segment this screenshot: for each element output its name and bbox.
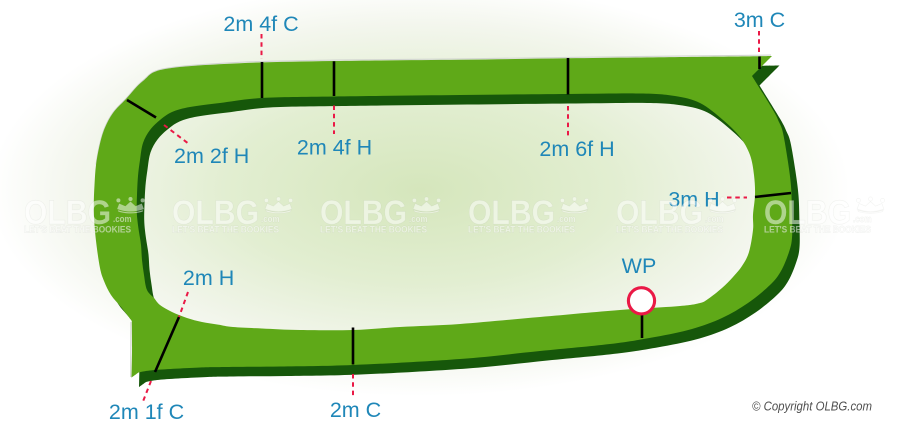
svg-text:LET'S BEAT THE BOOKIES: LET'S BEAT THE BOOKIES (468, 224, 575, 235)
svg-text:2m 2f H: 2m 2f H (174, 144, 249, 168)
svg-text:2m 1f C: 2m 1f C (109, 400, 184, 424)
svg-text:.com: .com (705, 214, 724, 224)
svg-text:.com: .com (113, 214, 132, 224)
svg-text:2m 6f H: 2m 6f H (539, 137, 614, 161)
svg-text:.com: .com (853, 214, 872, 224)
svg-text:LET'S BEAT THE BOOKIES: LET'S BEAT THE BOOKIES (24, 224, 131, 235)
svg-text:2m 4f C: 2m 4f C (223, 12, 298, 36)
svg-text:2m 4f H: 2m 4f H (297, 136, 372, 160)
svg-text:2m C: 2m C (330, 398, 381, 422)
svg-text:3m C: 3m C (734, 8, 785, 32)
svg-text:© Copyright OLBG.com: © Copyright OLBG.com (752, 399, 872, 414)
svg-text:2m H: 2m H (183, 266, 234, 290)
svg-text:.com: .com (261, 214, 280, 224)
svg-text:LET'S BEAT THE BOOKIES: LET'S BEAT THE BOOKIES (172, 224, 279, 235)
svg-text:WP: WP (622, 254, 657, 278)
svg-text:LET'S BEAT THE BOOKIES: LET'S BEAT THE BOOKIES (616, 224, 723, 235)
svg-text:.com: .com (409, 214, 428, 224)
svg-text:.com: .com (557, 214, 576, 224)
svg-text:LET'S BEAT THE BOOKIES: LET'S BEAT THE BOOKIES (320, 224, 427, 235)
svg-text:LET'S BEAT THE BOOKIES: LET'S BEAT THE BOOKIES (764, 224, 871, 235)
